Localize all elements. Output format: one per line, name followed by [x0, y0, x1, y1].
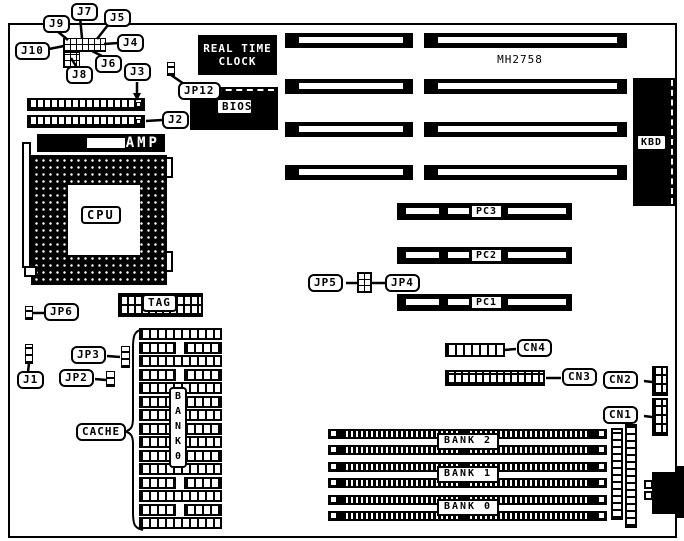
cache-chip [139, 369, 176, 381]
jumper-jp2 [106, 371, 115, 387]
isa-slot [424, 33, 627, 48]
jumper-jp3 [121, 346, 130, 368]
cache-chip [139, 504, 176, 516]
amp-notch [87, 138, 125, 148]
label-bios: BIOS [216, 98, 253, 115]
cache-chip [184, 423, 222, 435]
cache-chip [184, 342, 222, 354]
connector-cn2 [652, 366, 668, 396]
label-jp2: JP2 [59, 369, 94, 387]
label-cn1: CN1 [603, 406, 638, 424]
header-j3 [27, 98, 145, 111]
kbd-din-tab [644, 491, 653, 500]
cache-chip [139, 328, 222, 340]
label-j4: J4 [117, 34, 144, 52]
label-jp3: JP3 [71, 346, 106, 364]
label-j3: J3 [124, 63, 151, 81]
label-cache: CACHE [76, 423, 126, 441]
label-pc1: PC1 [470, 295, 503, 310]
label-j2: J2 [162, 111, 189, 129]
rtc-text-line2: CLOCK [198, 55, 277, 68]
label-j10: J10 [15, 42, 50, 60]
label-bank2: BANK 2 [437, 433, 499, 450]
label-j7: J7 [71, 3, 98, 21]
label-j6: J6 [95, 55, 122, 73]
label-jp12: JP12 [178, 82, 221, 100]
socket-tab-bottom [165, 251, 173, 272]
label-bank0: BANK 0 [437, 499, 499, 516]
cache-chip [184, 369, 222, 381]
socket-tab-top [165, 157, 173, 178]
isa-slot [285, 79, 413, 94]
label-cn3: CN3 [562, 368, 597, 386]
label-jp4: JP4 [385, 274, 420, 292]
label-jp5: JP5 [308, 274, 343, 292]
label-cache-bank0-vertical: B A N K 0 [169, 387, 187, 468]
board-model-text: MH2758 [487, 53, 553, 66]
label-pc2: PC2 [470, 248, 503, 263]
isa-slot [424, 122, 627, 137]
pin1-marker [136, 119, 141, 124]
label-tag: TAG [142, 294, 177, 312]
amp-socket-bar: AMP [37, 134, 165, 152]
cache-chip [184, 504, 222, 516]
connector-cn3 [445, 370, 545, 386]
real-time-clock-chip: REAL TIME CLOCK [198, 35, 277, 75]
label-j5: J5 [104, 9, 131, 27]
pc2-slot: PC2 [397, 247, 572, 264]
kbd-din-flange [676, 466, 684, 518]
jumper-jp5-jp4 [357, 272, 372, 293]
label-bank1: BANK 1 [437, 466, 499, 483]
kbd-din-tab [644, 480, 653, 489]
isa-slot [285, 122, 413, 137]
label-jp6: JP6 [44, 303, 79, 321]
cache-chip [184, 477, 222, 489]
connector-cn1 [652, 398, 668, 436]
label-j8: J8 [66, 66, 93, 84]
motherboard-diagram: J9 J7 J5 J10 J4 J6 J8 J3 J2 REAL TIME CL… [0, 0, 684, 541]
jumper-jp6 [25, 306, 33, 320]
label-j1: J1 [17, 371, 44, 389]
power-connector-col1 [611, 428, 623, 520]
cache-chip [139, 477, 176, 489]
rtc-text-line1: REAL TIME [198, 42, 277, 55]
cache-chip [139, 342, 176, 354]
label-amp: AMP [126, 135, 160, 151]
isa-slot [424, 165, 627, 180]
jumper-j1 [25, 344, 33, 364]
cache-chip [139, 355, 222, 367]
power-connector-col2 [625, 424, 637, 528]
cache-chip [184, 396, 222, 408]
isa-slot [424, 79, 627, 94]
socket-lever-foot [24, 266, 37, 277]
header-j2 [27, 115, 145, 128]
connector-cn4 [445, 343, 505, 357]
socket-lever [22, 142, 31, 268]
label-cn4: CN4 [517, 339, 552, 357]
isa-slot [285, 165, 413, 180]
pin1-marker [136, 102, 141, 107]
kbd-dash-line [671, 80, 673, 204]
pc1-slot: PC1 [397, 294, 572, 311]
isa-slot [285, 33, 413, 48]
label-cpu: CPU [81, 206, 121, 224]
label-j9: J9 [43, 15, 70, 33]
pc3-slot: PC3 [397, 203, 572, 220]
label-kbd: KBD [636, 134, 667, 151]
cache-chip [184, 450, 222, 462]
jumper-block-top [63, 38, 106, 52]
cache-chip [139, 517, 222, 529]
jumper-jp12 [167, 62, 175, 76]
cache-chip [139, 490, 222, 502]
label-pc3: PC3 [470, 204, 503, 219]
kbd-din-body [652, 472, 678, 514]
label-cn2: CN2 [603, 371, 638, 389]
